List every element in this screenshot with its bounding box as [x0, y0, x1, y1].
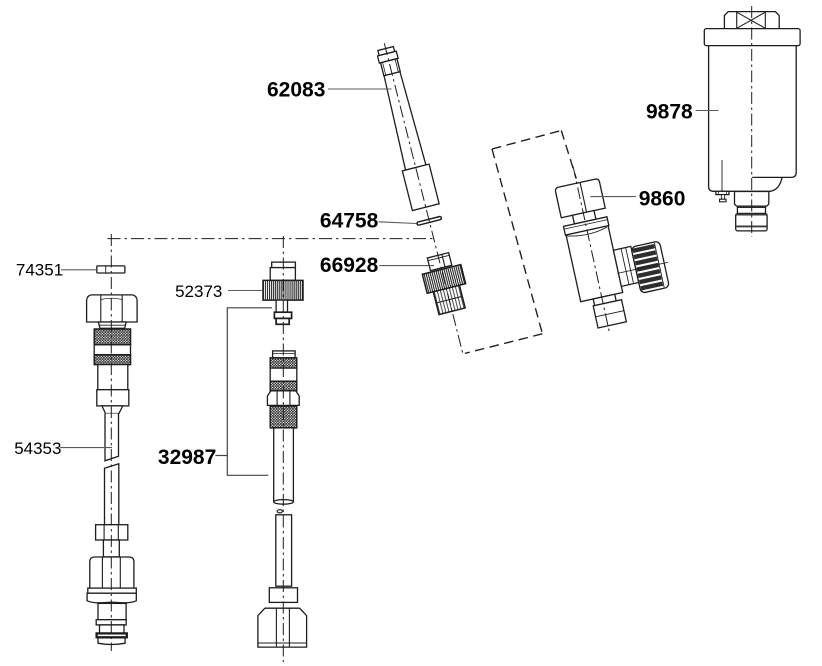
- svg-text:52373: 52373: [175, 282, 222, 301]
- svg-text:74351: 74351: [16, 261, 63, 280]
- svg-text:9860: 9860: [639, 187, 686, 210]
- svg-text:62083: 62083: [267, 79, 325, 102]
- svg-text:64758: 64758: [320, 210, 379, 233]
- svg-text:9878: 9878: [646, 100, 693, 123]
- svg-text:54353: 54353: [14, 439, 61, 458]
- svg-text:66928: 66928: [320, 254, 379, 277]
- svg-text:32987: 32987: [158, 446, 216, 469]
